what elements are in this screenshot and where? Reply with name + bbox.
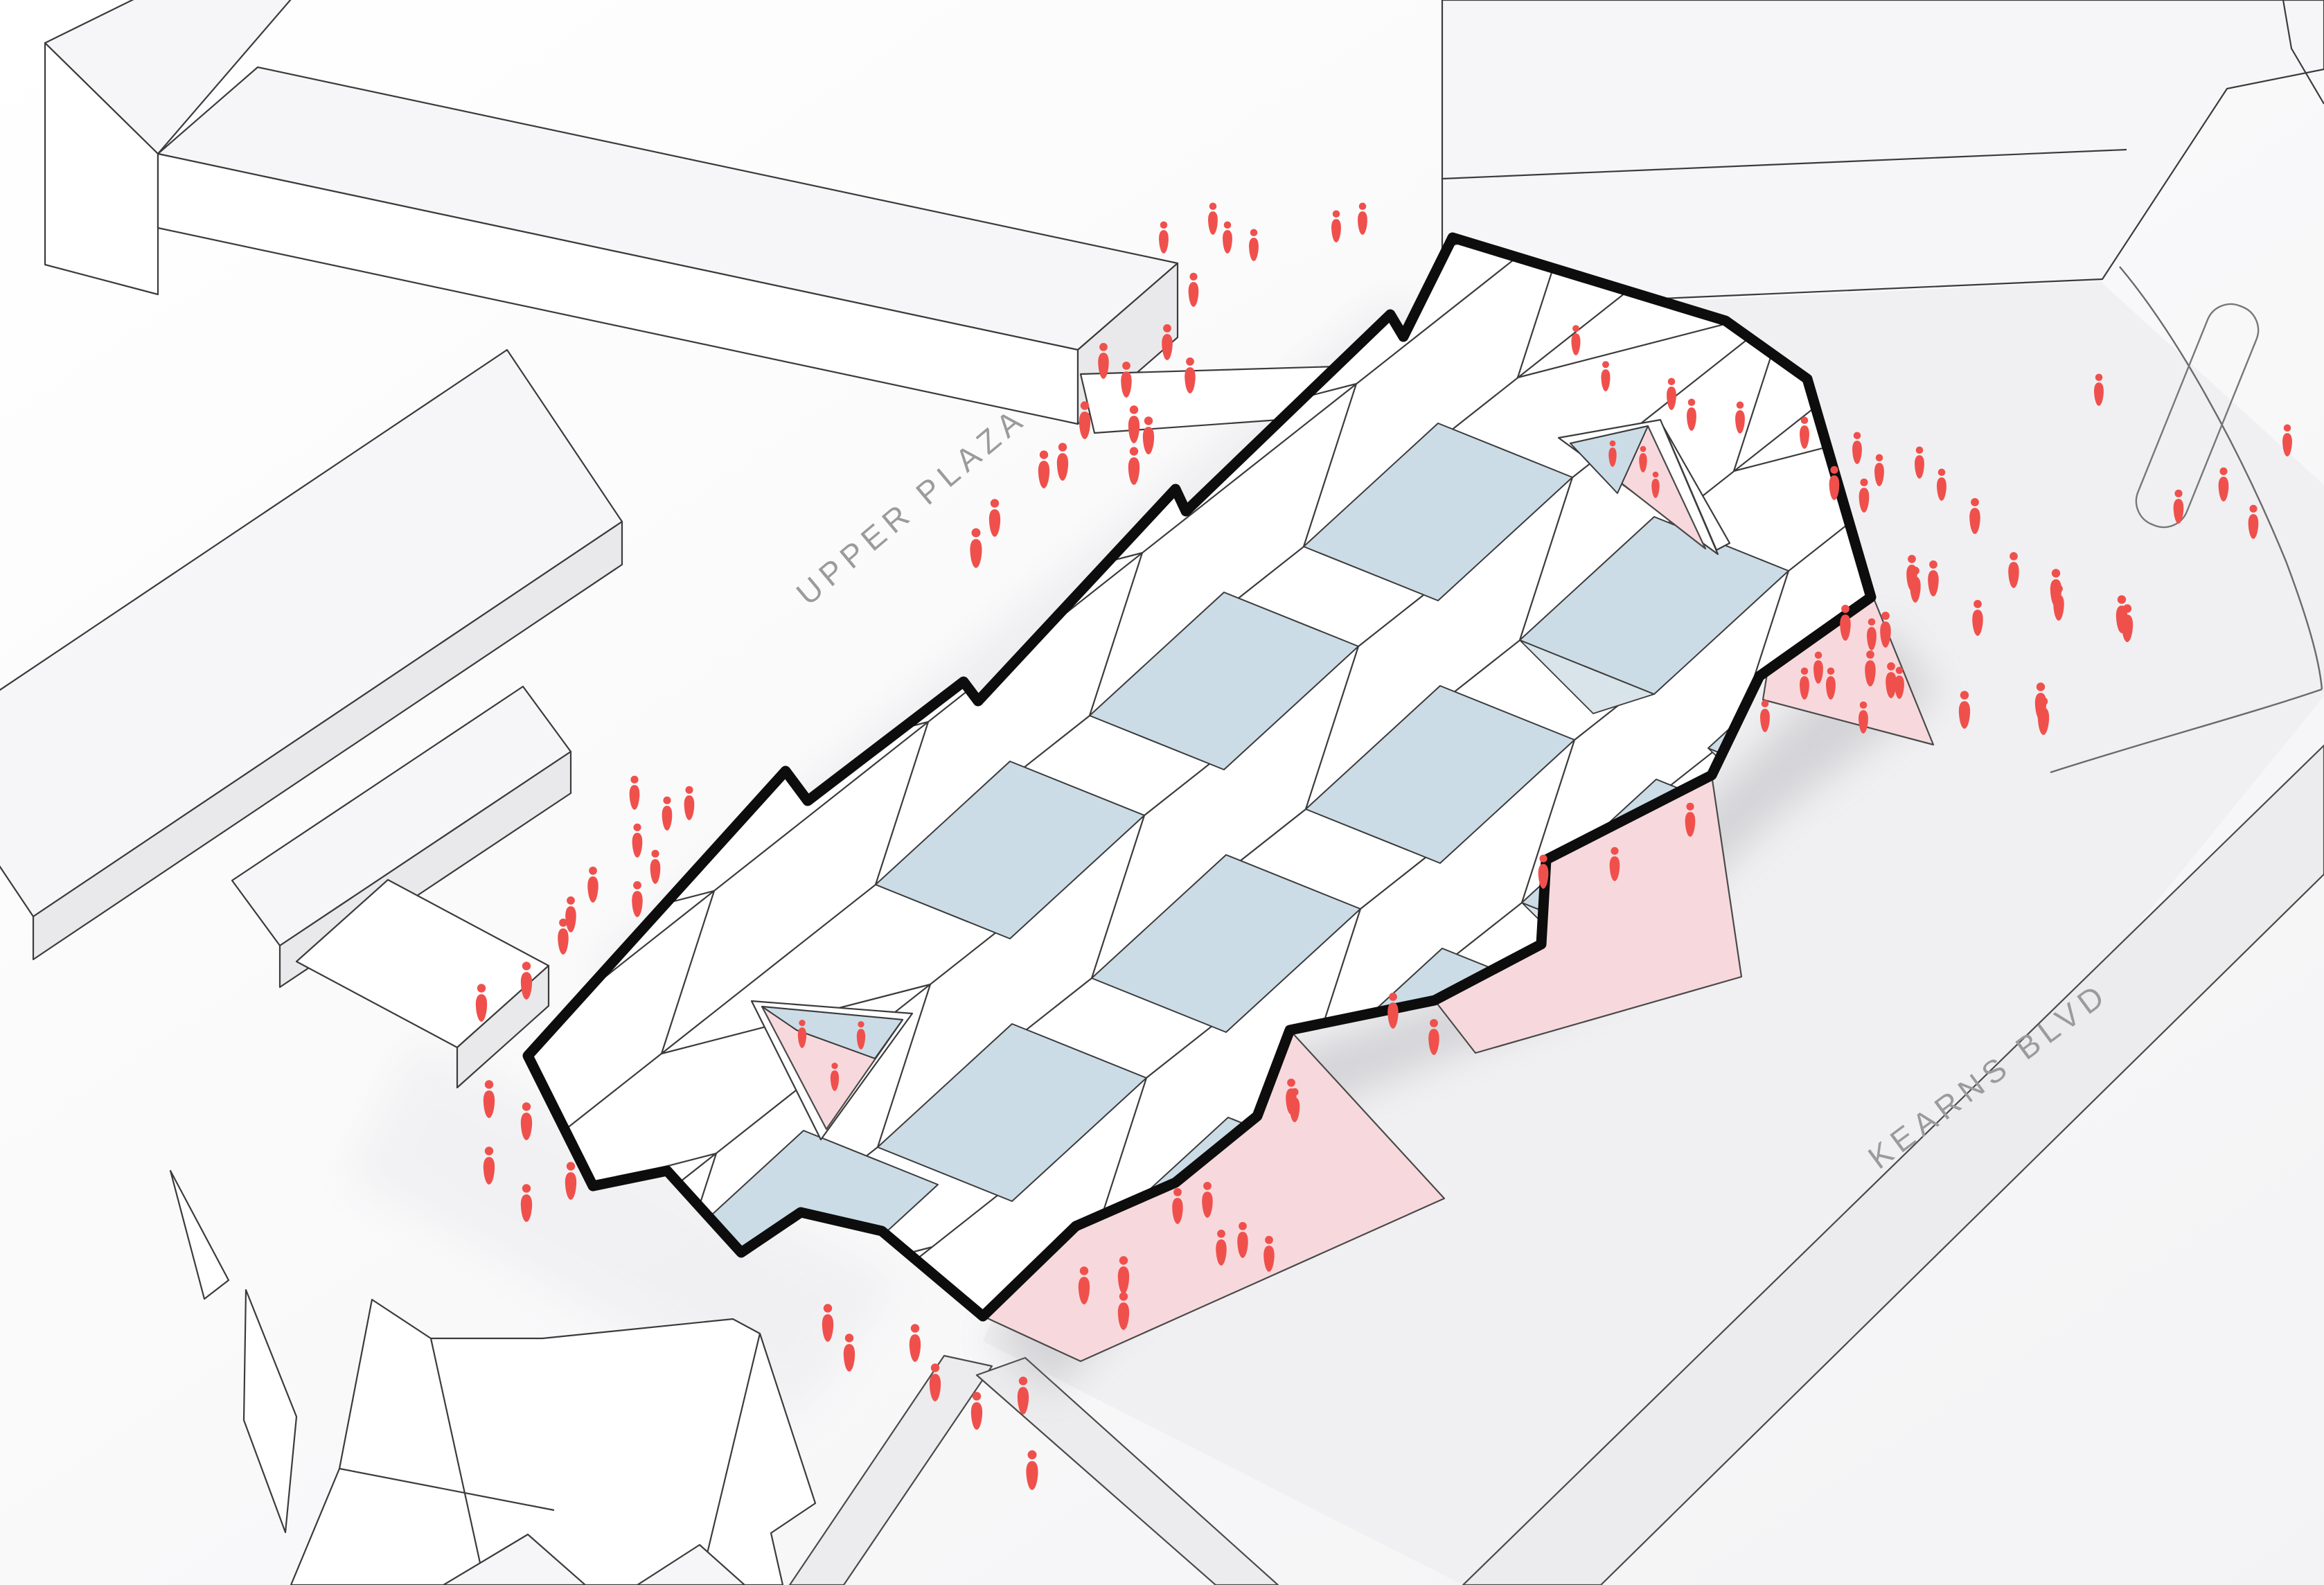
person-icon (1216, 1230, 1226, 1266)
person-icon (476, 984, 487, 1022)
person-icon (2248, 505, 2259, 539)
person-icon (2008, 552, 2019, 588)
person-icon (798, 1020, 806, 1048)
person-icon (521, 1184, 532, 1222)
person-icon (1237, 1222, 1248, 1258)
person-icon (1079, 1266, 1090, 1304)
person-icon (1018, 1376, 1029, 1415)
person-icon (521, 962, 532, 1000)
person-icon (1387, 993, 1398, 1029)
person-icon (1358, 202, 1367, 234)
person-icon (1202, 1182, 1212, 1218)
person-icon (2282, 424, 2292, 456)
person-icon (521, 1102, 532, 1140)
person-icon (662, 797, 673, 831)
person-icon (857, 1021, 865, 1050)
person-icon (1189, 273, 1199, 307)
person-icon (1038, 450, 1049, 488)
person-icon (822, 1304, 833, 1342)
person-icon (1538, 855, 1549, 889)
person-icon (1874, 454, 1884, 486)
person-icon (1026, 1451, 1038, 1490)
person-icon (1760, 700, 1770, 732)
person-icon (484, 1080, 495, 1118)
person-icon (831, 1063, 839, 1091)
person-icon (630, 776, 640, 810)
person-icon (1735, 401, 1745, 433)
person-icon (1128, 447, 1139, 485)
person-icon (1118, 1292, 1129, 1330)
person-icon (2038, 697, 2049, 735)
person-icon (1685, 803, 1696, 837)
person-icon (1886, 662, 1896, 698)
person-icon (1057, 443, 1068, 481)
person-icon (1331, 210, 1341, 242)
person-icon (684, 786, 695, 820)
person-icon (1852, 432, 1862, 463)
person-icon (2174, 490, 2184, 524)
person-icon (1162, 324, 1172, 360)
person-icon (1959, 691, 1970, 729)
person-icon (910, 1324, 921, 1362)
person-icon (1928, 560, 1938, 596)
person-icon (565, 896, 576, 932)
person-icon (1915, 446, 1924, 478)
person-icon (1128, 405, 1139, 443)
site-axonometric-diagram: UPPER PLAZA KEARNS BLVD (0, 0, 2324, 1585)
person-icon (632, 881, 642, 917)
person-icon (1840, 605, 1850, 641)
person-icon (1651, 472, 1659, 498)
person-icon (1249, 229, 1259, 260)
person-icon (1687, 398, 1696, 430)
person-icon (2094, 373, 2104, 405)
person-icon (1800, 667, 1809, 699)
person-icon (1639, 446, 1647, 472)
person-icon (558, 919, 568, 955)
person-icon (844, 1334, 855, 1372)
person-icon (1608, 441, 1616, 467)
person-icon (1826, 667, 1836, 699)
person-icon (484, 1146, 495, 1185)
person-icon (2053, 585, 2064, 621)
person-icon (1571, 325, 1580, 355)
person-icon (1079, 401, 1090, 439)
person-icon (1143, 416, 1154, 454)
mass-main (291, 1300, 815, 1585)
person-icon (1208, 202, 1218, 234)
person-icon (1223, 221, 1232, 253)
person-icon (1118, 1256, 1129, 1294)
person-icon (1290, 1088, 1300, 1122)
person-icon (1895, 666, 1904, 698)
person-icon (971, 1392, 982, 1430)
person-icon (1865, 650, 1875, 687)
person-icon (1937, 468, 1946, 500)
person-icon (2219, 468, 2229, 502)
person-icon (632, 824, 643, 858)
person-icon (1972, 600, 1983, 636)
person-icon (989, 499, 1000, 537)
person-icon (1910, 567, 1920, 603)
person-icon (1098, 343, 1108, 379)
person-icon (1172, 1188, 1182, 1224)
person-icon (1859, 479, 1870, 513)
person-icon (2122, 604, 2133, 642)
person-icon (587, 867, 598, 903)
person-icon (970, 529, 982, 568)
person-icon (1185, 357, 1195, 393)
person-icon (1610, 847, 1620, 881)
person-icon (1880, 612, 1890, 648)
person-icon (930, 1363, 941, 1401)
person-icon (1969, 498, 1980, 534)
person-icon (1428, 1019, 1439, 1055)
person-icon (1813, 651, 1823, 683)
person-icon (1263, 1236, 1274, 1272)
person-icon (1859, 701, 1868, 733)
person-icon (1601, 361, 1610, 391)
person-icon (1667, 378, 1676, 409)
person-icon (1159, 221, 1169, 253)
person-icon (1121, 362, 1131, 398)
person-icon (565, 1162, 576, 1200)
person-icon (650, 850, 661, 884)
person-icon (1829, 466, 1840, 500)
person-icon (1867, 618, 1877, 650)
person-icon (1800, 416, 1809, 448)
